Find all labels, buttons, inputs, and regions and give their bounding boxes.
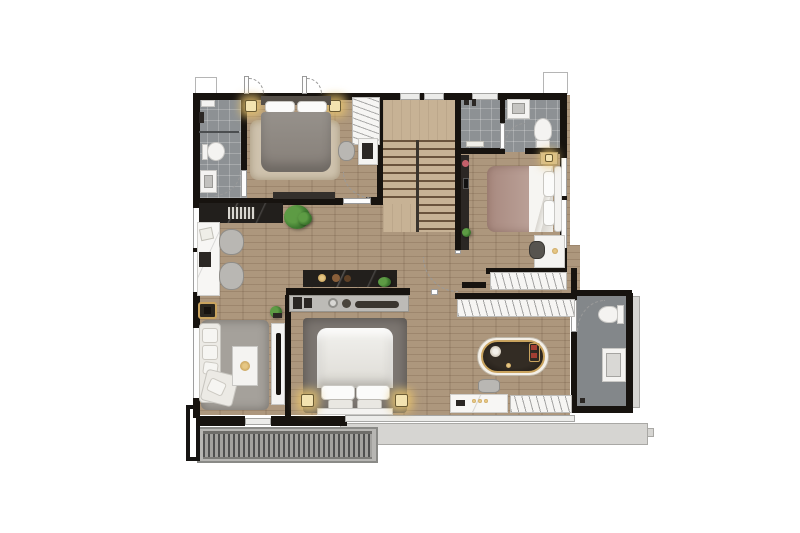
window-top-stairs-2 [424,93,444,100]
stairs-wall-cap [455,250,461,254]
masterbed-headboard [317,408,393,415]
bed2-nightstand-lamp [545,154,553,162]
bath3-shower-glass [606,353,621,377]
pantry-appliance-2 [304,298,312,308]
island-bowl-gold [318,274,326,282]
window-top-stairs-1 [400,93,420,100]
balcony-door-lounge [245,418,271,425]
wall-masterbath-right [626,293,633,412]
bath2-door-leaf [500,123,505,149]
wall-closet-top-stub [462,282,486,288]
office-chair-2 [219,262,244,290]
coffee-table-bowl [240,361,250,371]
bed1-bench-runner [273,192,335,199]
stairs-center-stringer [416,140,419,232]
vanity-stool [478,379,500,393]
masterbed-pillow-2 [356,385,390,400]
island-bowl-2 [344,275,351,282]
master-bath-side-ledge [632,296,640,408]
balcony-door1-swing [249,78,264,94]
wall-masterbath-bottom [571,406,633,413]
bath3-drain [580,398,585,403]
bed2-desk-deco [552,248,558,254]
masterbed-pillow-1 [321,385,355,400]
island-plant [378,277,391,287]
bed1-door-leaf [343,198,371,204]
wall-bath1-divider [199,131,239,133]
bath3-toilet-tank [617,305,624,324]
vanity-faucet-2 [478,399,482,403]
bath3-toilet-bowl [598,306,618,323]
bathtub-flowers [490,346,501,357]
desk-monitor [199,252,211,267]
wall-bath2-divider [500,97,505,123]
bath1-sink-basin [204,175,213,188]
master-entry-cap [431,289,438,295]
concrete-ledge [340,423,648,445]
bath2-shower-control-1 [464,100,469,105]
masterbed-duvet [317,328,393,388]
lounge-console-deco [273,313,282,318]
bed1-desk-monitor [362,143,373,159]
balcony-door2-swing [307,78,322,94]
wall-lounge-bottom-a [196,416,245,426]
ledge-nub [647,428,654,437]
balcony-deck-slats [203,431,372,459]
bed2-headboard [554,166,562,232]
gold-side-table-deco [204,307,211,314]
bath1-toilet-bowl [207,142,225,161]
bath1-shower-head [199,112,204,123]
floor-plan-canvas [0,0,800,533]
bath2-shower-control-2 [472,99,476,106]
wall-master-entry [286,288,410,295]
pantry-sink [328,298,338,308]
wall-masterbath-top [571,290,632,296]
vanity-faucet-3 [484,399,488,403]
bathtub-tray-item1 [531,345,537,350]
bed1-duvet [261,112,331,172]
stairs-left-flight [383,140,416,204]
bathtub-tray-item2 [531,353,537,358]
lounge-plant-large-2 [298,212,312,225]
bath2-toilet-tank [536,140,550,148]
bed2-deco-flowers [462,160,469,167]
closet-wardrobe-upper [490,272,567,290]
office-chair-1 [219,229,244,255]
master-bottom-window-band [345,415,575,422]
pantry-appliance-1 [293,297,302,309]
master-lamp-left [301,394,314,407]
bathtub-drain [506,363,511,368]
bath1-door-leaf [241,170,247,197]
bed1-lamp-left [245,100,257,112]
bed1-desk-chair [338,141,355,161]
vanity-wardrobe [510,395,572,413]
bath2-bath-mat [466,141,484,147]
bed2-plant [462,228,471,237]
lounge-tv [276,333,281,395]
sofa-cushion-2 [202,345,218,360]
bath1-shelf [201,100,215,107]
island-bowl-1 [332,274,340,282]
bath2-basin [512,103,525,114]
pantry-tray [355,301,399,308]
sofa-cushion-1 [202,328,218,343]
ac-ledge-top-left [195,77,217,94]
bed2-chair [529,241,545,259]
wall-bath2-bottom-left [458,148,505,154]
pantry-bowl [342,299,351,308]
wall-master-west [285,295,291,416]
ac-ledge-top-right [543,72,568,94]
stairs-right-flight [419,140,455,232]
master-lamp-right [395,394,408,407]
bed2-deco-phone [463,178,469,189]
closet-wardrobe-lower [457,299,575,317]
vanity-faucet-1 [472,399,476,403]
sideboard-books [228,207,255,219]
bath2-toilet-bowl [534,118,552,141]
wall-lounge-bottom-b [271,416,347,426]
vanity-tray [456,400,465,406]
